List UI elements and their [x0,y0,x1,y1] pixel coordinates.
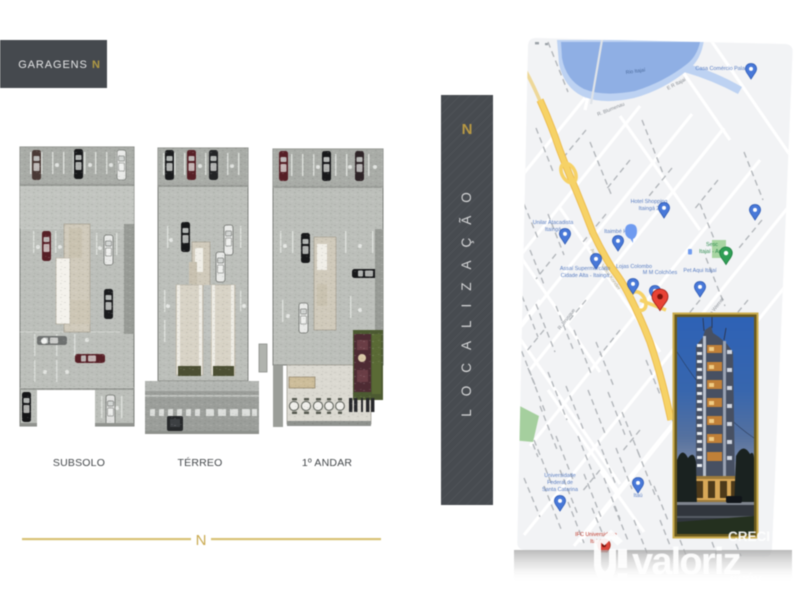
svg-text:CRECI 757: CRECI 757 [728,529,796,544]
svg-text:Federal de: Federal de [547,480,573,486]
svg-text:SUBSOLO: SUBSOLO [53,457,105,469]
svg-text:1º ANDAR: 1º ANDAR [302,457,353,469]
svg-text:LOCALIZAÇÃO: LOCALIZAÇÃO [459,179,474,417]
svg-text:N: N [462,121,473,138]
svg-text:Assaí Supermercado: Assaí Supermercado [560,266,610,272]
svg-text:Sesc: Sesc [706,242,718,248]
svg-text:TÉRREO: TÉRREO [178,456,223,469]
svg-text:N: N [92,59,100,71]
svg-text:Unilar Atacadista: Unilar Atacadista [533,220,573,226]
svg-text:Cidade Alta - Itaingá: Cidade Alta - Itaingá [561,273,610,279]
svg-text:M M Colchões: M M Colchões [643,270,678,276]
svg-text:Casa Comércio Palace: Casa Comércio Palace [695,66,750,72]
svg-text:Itaingá 2: Itaingá 2 [639,206,660,212]
svg-text:Itaú: Itaú [634,493,643,499]
svg-text:Santa Catarina: Santa Catarina [542,487,578,493]
svg-text:Universidade: Universidade [544,473,575,479]
svg-text:GARAGENS: GARAGENS [18,59,88,71]
svg-text:Pet Aqui Itajaí: Pet Aqui Itajaí [683,268,717,274]
svg-text:Itaingá: Itaingá [545,227,561,233]
svg-text:N: N [196,532,207,549]
svg-text:valoriz: valoriz [632,541,741,583]
svg-text:imóv: imóv [730,570,762,587]
